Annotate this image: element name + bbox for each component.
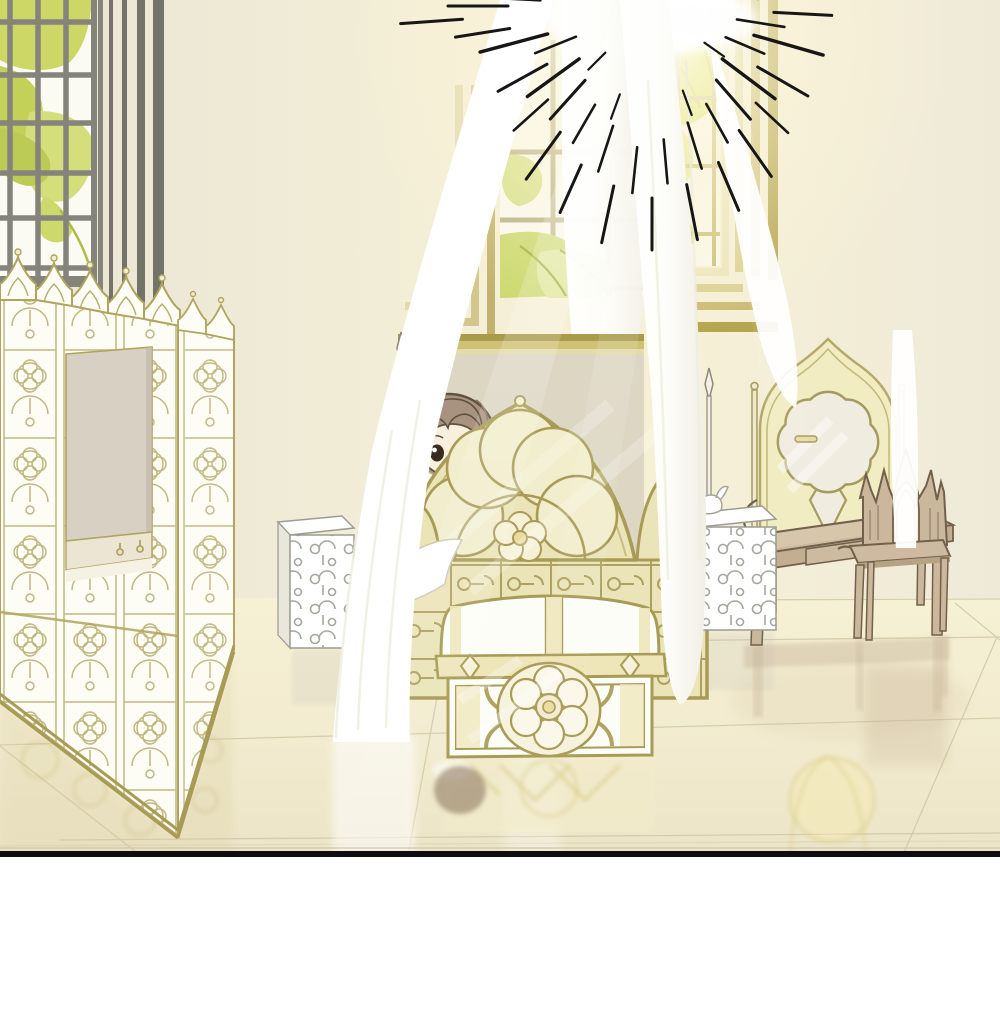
nightstand-left (278, 516, 354, 648)
screen-pass-through-opening (66, 347, 152, 541)
webtoon-page (0, 0, 1000, 1013)
canopy-curtain-strand (891, 330, 918, 548)
page-margin (0, 857, 1000, 1013)
mirror-reflection (792, 760, 872, 840)
bedroom-panel (0, 0, 1000, 1013)
left-lattice-window (0, 0, 96, 287)
panel-border-line (0, 851, 1000, 857)
chair-reflection (865, 665, 947, 765)
